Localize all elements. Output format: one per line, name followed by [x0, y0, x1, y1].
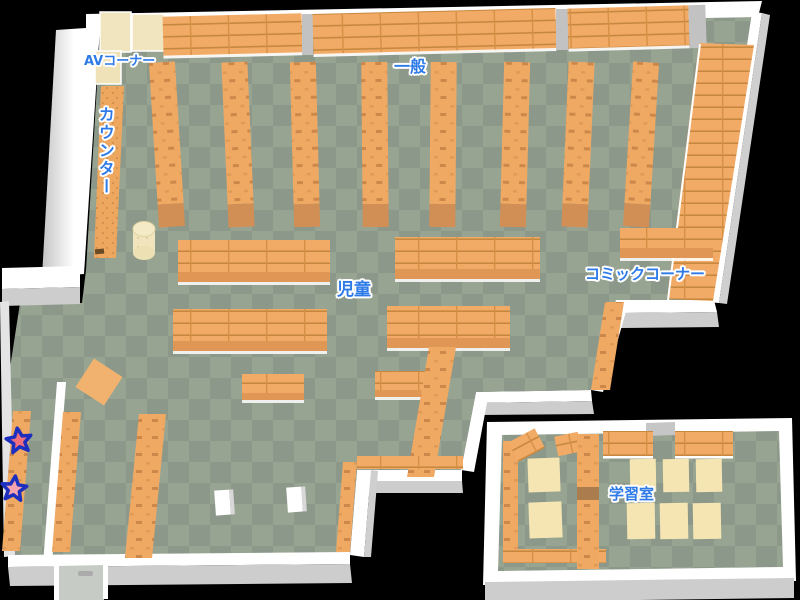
wall-pillar — [302, 14, 313, 55]
label-counter: カウンター — [96, 106, 113, 196]
label-study-room: 学習室 — [609, 487, 654, 503]
children-shelf — [178, 240, 330, 285]
wall-shelf — [357, 456, 463, 469]
label-av-corner: AVコーナー — [84, 55, 155, 69]
counter-item — [95, 248, 104, 254]
comic-shelf — [620, 228, 713, 261]
white-box — [214, 489, 235, 515]
study-table — [660, 503, 689, 539]
label-comic-corner: コミックコーナー — [585, 267, 705, 283]
study-table — [693, 503, 722, 539]
comic-bottom-wall — [476, 390, 592, 403]
entrance-floor — [58, 565, 104, 600]
wall-pillar — [556, 9, 568, 50]
label-children: 児童 — [337, 282, 371, 300]
children-shelf — [173, 309, 327, 354]
study-table — [663, 459, 690, 492]
children-shelf — [242, 374, 304, 403]
study-table — [527, 457, 560, 492]
general-shelf-column — [361, 62, 388, 227]
study-table — [696, 459, 723, 492]
door-handle — [78, 571, 93, 576]
label-general: 一般 — [394, 59, 426, 76]
annex-top-wall — [2, 266, 80, 289]
study-room — [483, 418, 796, 600]
general-shelf-column — [290, 62, 320, 228]
study-shelf — [503, 441, 518, 556]
wall-pillar — [688, 5, 706, 49]
library-floor-map: AVコーナー 一般 カウンター 児童 コミックコーナー 学習室 — [0, 0, 800, 600]
general-shelf-column — [500, 62, 530, 228]
study-divider-shelf — [577, 434, 599, 569]
general-shelf-column — [429, 62, 456, 227]
floor-map-canvas — [0, 0, 800, 600]
children-shelf — [387, 306, 510, 351]
comic-step-wall — [616, 300, 717, 313]
round-stool — [133, 222, 155, 261]
children-shelf — [395, 237, 540, 282]
white-box — [286, 486, 307, 512]
study-table — [528, 501, 562, 538]
study-table — [627, 503, 656, 539]
